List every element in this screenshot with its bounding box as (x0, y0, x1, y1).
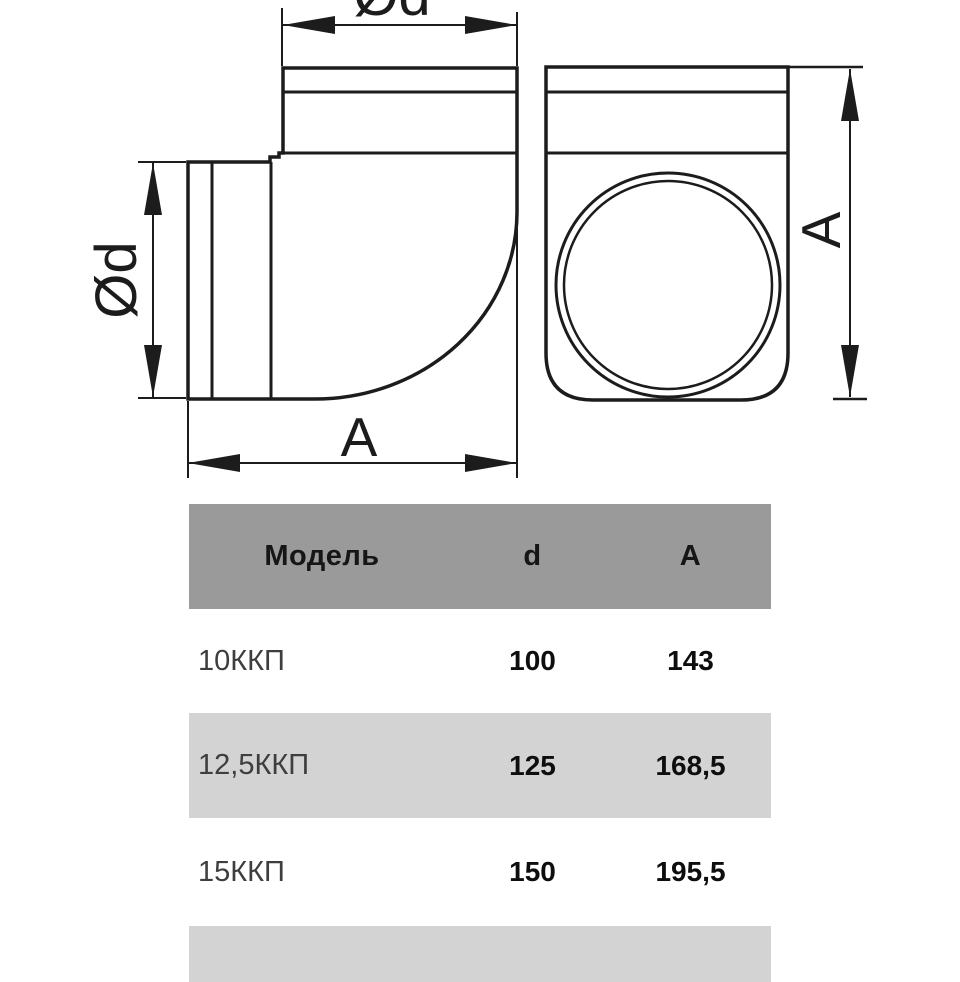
dim-bottom-arrow-right (465, 454, 517, 472)
cell-d: 125 (455, 750, 610, 782)
front-duct-inner-circle (564, 181, 772, 389)
dim-left-diameter: Ød (84, 162, 186, 398)
dim-label-right-height: A (790, 211, 852, 248)
cell-model: 15ККП (189, 856, 455, 889)
side-view-outline (188, 68, 517, 399)
dim-top-arrow-left (283, 16, 335, 34)
col-header-a: A (610, 540, 771, 573)
cell-d: 100 (455, 645, 610, 677)
dim-label-bottom-length: A (341, 406, 378, 468)
front-view (546, 67, 788, 400)
dim-bottom-arrow-left (188, 454, 240, 472)
cell-model: 10ККП (189, 645, 455, 678)
front-view-outline (546, 67, 788, 400)
dim-bottom-length: A (188, 214, 517, 478)
table-row: 10ККП 100 143 (189, 609, 771, 713)
cell-model: 12,5ККП (189, 749, 455, 782)
table-row: 15ККП 150 195,5 (189, 818, 771, 926)
table-header-row: Модель d A (189, 504, 771, 609)
front-duct-outer-circle (556, 173, 780, 397)
dimensions-table: Модель d A 10ККП 100 143 12,5ККП 125 168… (189, 504, 771, 982)
col-header-d: d (455, 540, 610, 573)
cell-a: 168,5 (610, 750, 771, 782)
cell-a: 143 (610, 645, 771, 677)
dim-top-arrow-right (465, 16, 517, 34)
table-row-partial (189, 926, 771, 982)
table-row: 12,5ККП 125 168,5 (189, 713, 771, 818)
dim-right-height: A (788, 67, 867, 399)
dim-left-arrow-bottom (144, 345, 162, 397)
col-header-model: Модель (189, 540, 455, 573)
dim-label-top-diameter: Ød (353, 0, 430, 28)
dim-left-arrow-top (144, 163, 162, 215)
dim-top-diameter: Ød (282, 0, 517, 66)
dim-label-left-diameter: Ød (84, 241, 149, 318)
cell-a: 195,5 (610, 856, 771, 888)
dim-right-arrow-top (841, 69, 859, 121)
side-view (188, 68, 517, 399)
cell-d: 150 (455, 856, 610, 888)
dim-right-arrow-bottom (841, 345, 859, 397)
